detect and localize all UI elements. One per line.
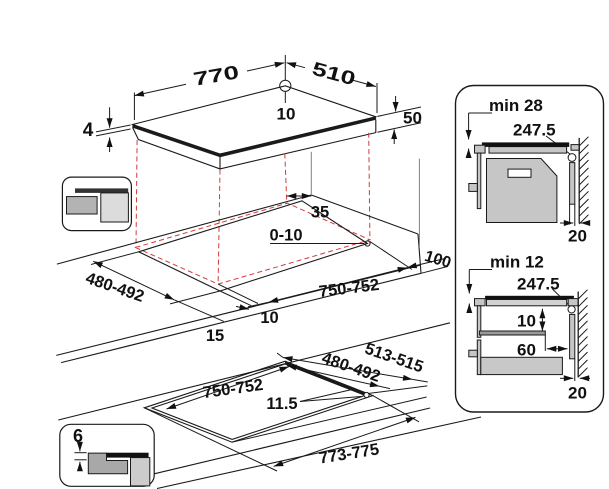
svg-text:20: 20 (568, 227, 587, 246)
svg-text:10: 10 (260, 309, 278, 327)
svg-text:35: 35 (311, 204, 329, 222)
svg-text:0-10: 0-10 (269, 227, 302, 245)
svg-text:min 28: min 28 (489, 96, 543, 115)
svg-text:10: 10 (517, 312, 536, 331)
svg-text:50: 50 (403, 109, 422, 128)
svg-text:247.5: 247.5 (517, 275, 560, 294)
svg-text:4: 4 (83, 120, 94, 141)
svg-text:6: 6 (73, 426, 83, 446)
svg-text:10: 10 (277, 105, 296, 124)
svg-text:min 12: min 12 (490, 253, 544, 272)
svg-text:11.5: 11.5 (266, 395, 297, 413)
svg-text:60: 60 (517, 341, 536, 360)
svg-text:15: 15 (206, 327, 224, 345)
svg-text:247.5: 247.5 (513, 121, 556, 140)
svg-text:20: 20 (568, 384, 587, 403)
